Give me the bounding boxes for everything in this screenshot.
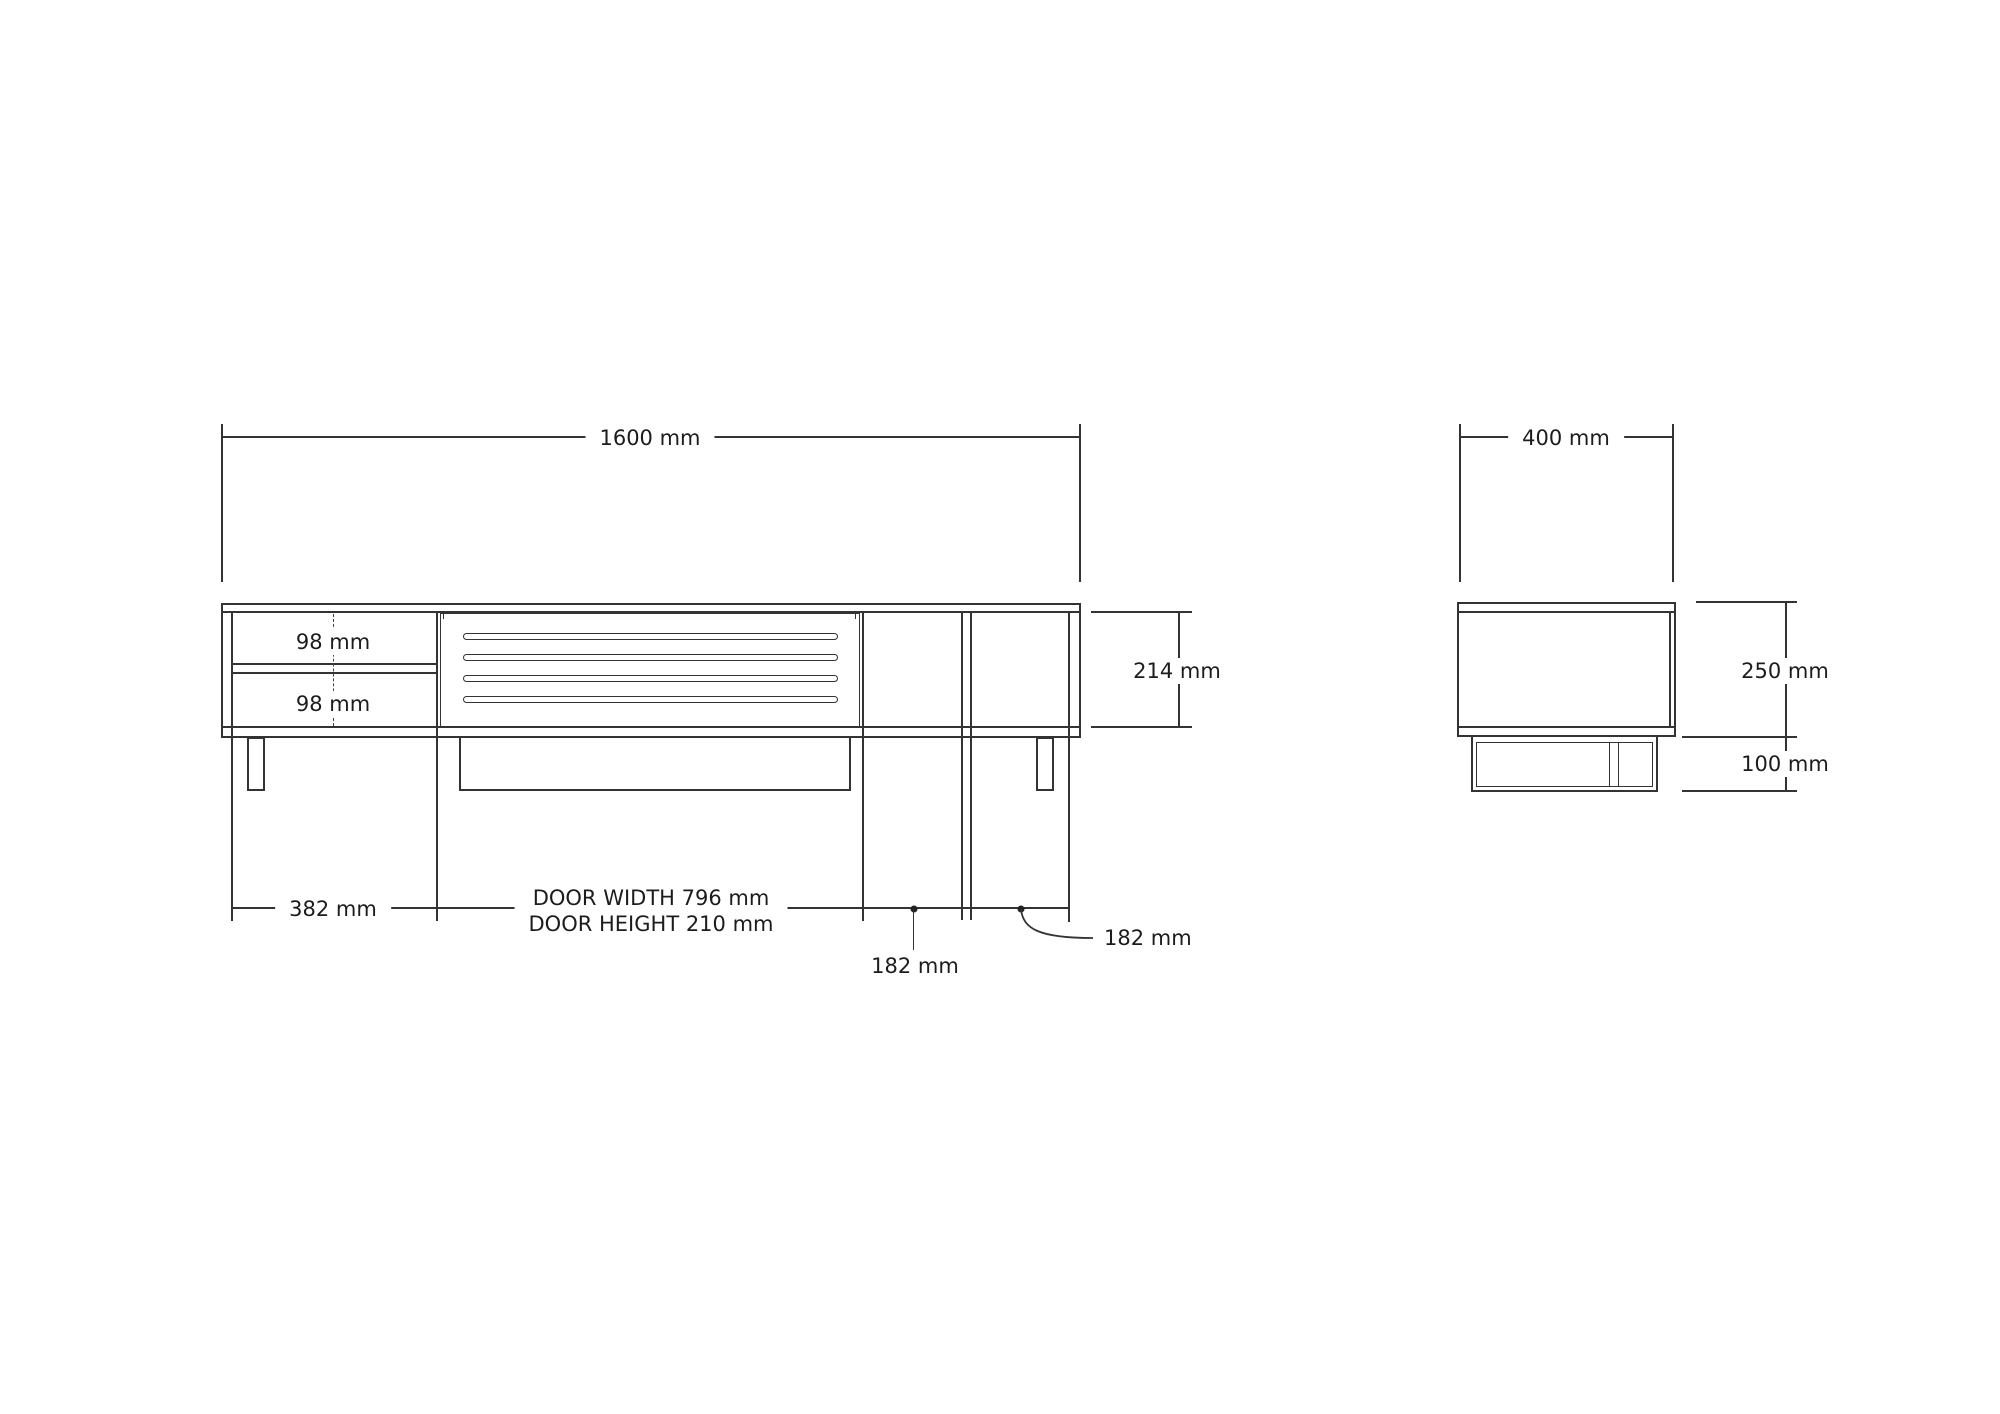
- shelf-left-leader-line: [913, 910, 914, 950]
- carcass-height-tick-bottom: [1091, 726, 1192, 728]
- door-panel: [440, 613, 860, 727]
- front-width-label: 1600 mm: [585, 425, 714, 451]
- shelf-right-leader-curve: [1021, 909, 1101, 949]
- door-slat: [463, 696, 838, 703]
- door-right-edge-extension-line: [862, 611, 864, 921]
- side-body-outline: [1457, 602, 1676, 737]
- side-depth-extension-line-right: [1672, 424, 1674, 582]
- door-width-note-line: DOOR WIDTH 796 mm: [529, 885, 774, 911]
- left-section-width-label: 382 mm: [275, 896, 391, 922]
- door-height-note-line: DOOR HEIGHT 210 mm: [529, 911, 774, 937]
- technical-drawing-canvas: 1600 mm 98 mm 98 mm: [0, 0, 2000, 1414]
- door-left-edge-extension-line: [436, 611, 438, 921]
- drawer-divider-upper-line: [231, 663, 438, 665]
- side-plinth-inner-panel: [1476, 742, 1653, 787]
- door-size-note: DOOR WIDTH 796 mm DOOR HEIGHT 210 mm: [515, 883, 788, 939]
- shelf-right-width-label: 182 mm: [1100, 925, 1196, 951]
- side-height-tick-top: [1696, 601, 1797, 603]
- carcass-height-tick-top: [1091, 611, 1192, 613]
- front-plinth: [459, 737, 851, 791]
- side-base-height-label: 100 mm: [1727, 751, 1843, 777]
- side-plinth-divider-right-line: [1618, 742, 1619, 787]
- side-base-tick-bottom: [1682, 790, 1797, 792]
- drawer-bottom-height-label: 98 mm: [288, 691, 378, 717]
- door-slat: [463, 633, 838, 640]
- side-body-height-label: 250 mm: [1727, 658, 1843, 684]
- shelf-left-width-label: 182 mm: [867, 953, 963, 979]
- side-top-panel-line: [1457, 611, 1676, 613]
- front-right-leg: [1036, 737, 1054, 791]
- drawer-divider-lower-line: [231, 672, 438, 674]
- side-depth-label: 400 mm: [1508, 425, 1624, 451]
- front-left-inner-panel-extension-line: [231, 611, 233, 921]
- door-slat: [463, 654, 838, 661]
- door-hinge-tick-left: [443, 613, 444, 619]
- drawer-top-height-label: 98 mm: [288, 629, 378, 655]
- shelf-divider-right-line-extension: [970, 611, 972, 920]
- front-width-extension-line-left: [221, 424, 223, 582]
- front-left-leg: [247, 737, 265, 791]
- front-right-inner-panel-extension-line: [1068, 611, 1070, 922]
- carcass-height-label: 214 mm: [1119, 658, 1235, 684]
- shelf-left-dimension-point: [911, 906, 918, 913]
- shelf-divider-left-line-extension: [961, 611, 963, 920]
- door-slat: [463, 675, 838, 682]
- side-depth-extension-line-left: [1459, 424, 1461, 582]
- side-bottom-panel-line: [1457, 726, 1676, 728]
- side-front-edge-line: [1669, 611, 1671, 727]
- side-plinth-divider-left-line: [1609, 742, 1610, 787]
- front-width-extension-line-right: [1079, 424, 1081, 582]
- door-hinge-tick-right: [855, 613, 856, 619]
- side-height-tick-middle: [1682, 736, 1797, 738]
